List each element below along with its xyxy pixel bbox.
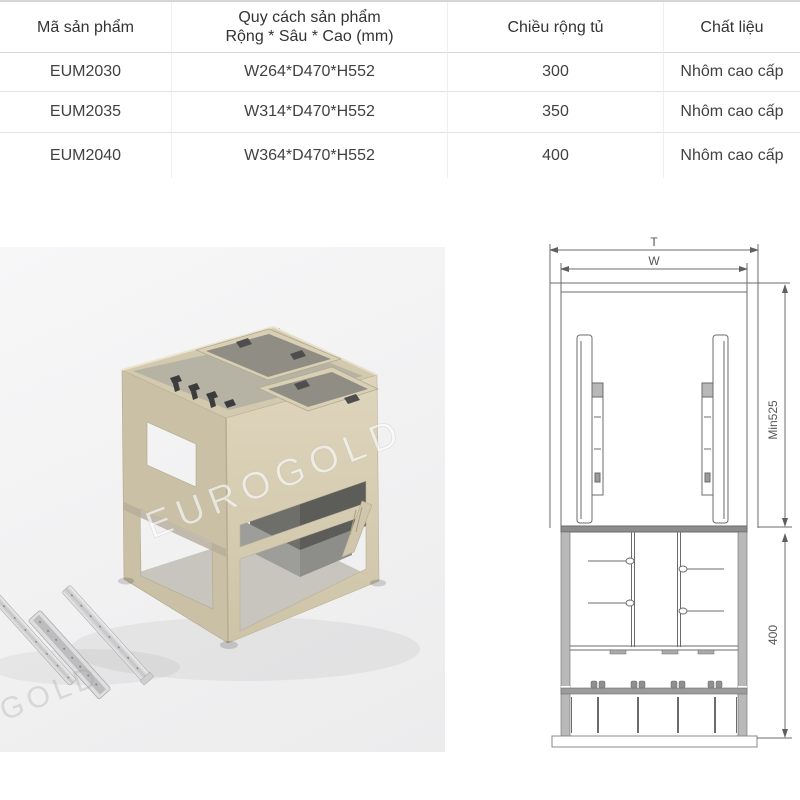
- label-T: T: [650, 235, 658, 249]
- header-label: Chất liệu: [700, 18, 763, 37]
- cell-size-row3: W364*D470*H552: [172, 133, 448, 178]
- header-label: Chiều rộng tủ: [507, 18, 603, 37]
- cell-size-row1: W264*D470*H552: [172, 53, 448, 92]
- label-min525: Min525: [766, 400, 780, 440]
- cell-width-row2: 350: [448, 92, 664, 133]
- cell-width-row1: 300: [448, 53, 664, 92]
- product-photo: EUROGOLD EUROGOLD: [0, 247, 445, 752]
- col-header-product-code: Mã sản phẩm: [0, 2, 172, 53]
- right-rail-drawing: [702, 335, 728, 523]
- col-header-material: Chất liệu: [664, 2, 800, 53]
- cell-material-row1: Nhôm cao cấp: [664, 53, 800, 92]
- product-spec-page: Mã sản phẩm Quy cách sản phẩm Rộng * Sâu…: [0, 0, 800, 800]
- cell-code-row1: EUM2030: [0, 53, 172, 92]
- spec-table: Mã sản phẩm Quy cách sản phẩm Rộng * Sâu…: [0, 0, 800, 178]
- left-rail-drawing: [577, 335, 603, 523]
- label-400: 400: [766, 625, 780, 645]
- cell-material-row3: Nhôm cao cấp: [664, 133, 800, 178]
- header-label-line1: Quy cách sản phẩm: [238, 8, 380, 27]
- drawer-organizer-illustration: EUROGOLD EUROGOLD: [0, 247, 445, 752]
- cabinet-outline: [550, 283, 790, 528]
- cell-width-row3: 400: [448, 133, 664, 178]
- cell-code-row2: EUM2035: [0, 92, 172, 133]
- basket-front-view: [552, 526, 757, 747]
- header-label: Mã sản phẩm: [37, 18, 134, 37]
- col-header-spec: Quy cách sản phẩm Rộng * Sâu * Cao (mm): [172, 2, 448, 53]
- dimension-diagram-svg: T W Min525 400: [540, 235, 800, 760]
- col-header-cabinet-width: Chiều rộng tủ: [448, 2, 664, 53]
- cell-material-row2: Nhôm cao cấp: [664, 92, 800, 133]
- header-label-line2: Rộng * Sâu * Cao (mm): [225, 27, 393, 46]
- dimension-diagram: T W Min525 400: [540, 235, 800, 760]
- cell-code-row3: EUM2040: [0, 133, 172, 178]
- label-W: W: [648, 254, 660, 268]
- cell-size-row2: W314*D470*H552: [172, 92, 448, 133]
